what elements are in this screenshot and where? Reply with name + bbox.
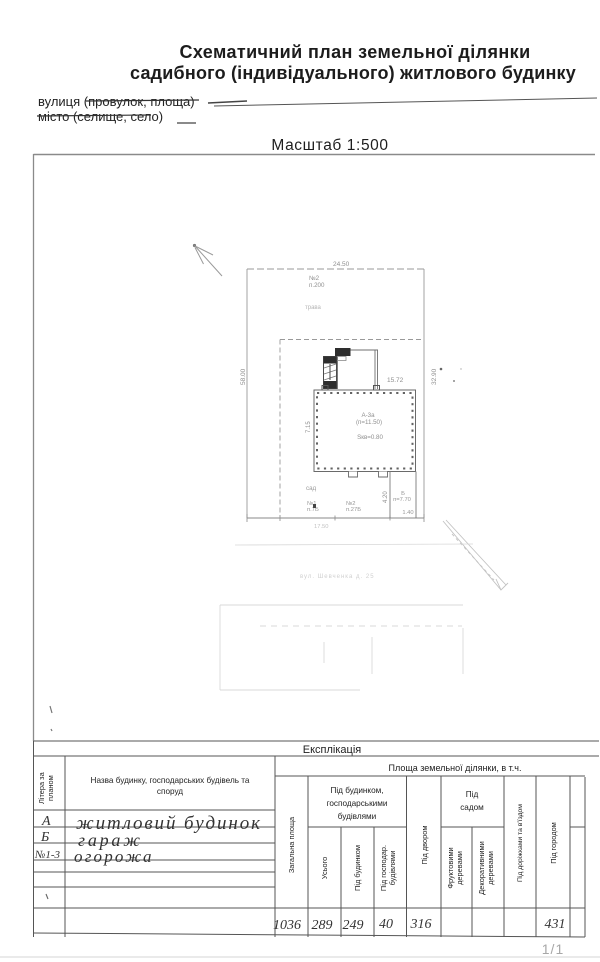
svg-text:господарськими: господарськими bbox=[327, 799, 388, 808]
svg-text:(п=11.50): (п=11.50) bbox=[356, 419, 382, 426]
svg-text:Декоративними: Декоративними bbox=[477, 841, 486, 894]
svg-text:Під будинком: Під будинком bbox=[353, 845, 362, 891]
svg-text:огорожа: огорожа bbox=[74, 847, 154, 866]
svg-text:Масштаб 1:500: Масштаб 1:500 bbox=[271, 137, 388, 154]
svg-text:58.00: 58.00 bbox=[240, 368, 247, 385]
svg-text:24.50: 24.50 bbox=[333, 261, 350, 268]
svg-text:Експлікація: Експлікація bbox=[303, 744, 362, 756]
svg-text:планом: планом bbox=[46, 775, 55, 801]
svg-text:А: А bbox=[41, 814, 51, 829]
svg-text:Літера за: Літера за bbox=[37, 771, 46, 804]
svg-text:№2: №2 bbox=[309, 275, 320, 282]
svg-text:вулиця (провулок, площа): вулиця (провулок, площа) bbox=[38, 94, 195, 109]
svg-text:садибного (індивідуального) жи: садибного (індивідуального) житлового бу… bbox=[130, 63, 576, 83]
svg-text:А-3а: А-3а bbox=[361, 412, 375, 419]
svg-text:7.15: 7.15 bbox=[306, 421, 312, 433]
svg-text:289: 289 bbox=[312, 918, 333, 933]
svg-text:316: 316 bbox=[410, 917, 432, 932]
svg-text:сад: сад bbox=[306, 485, 317, 492]
svg-text:садом: садом bbox=[460, 803, 484, 812]
svg-text:місто (селище, село): місто (селище, село) bbox=[38, 109, 163, 124]
svg-text:п.7Б: п.7Б bbox=[307, 507, 319, 513]
svg-text:споруд: споруд bbox=[157, 787, 183, 796]
svg-text:1.40: 1.40 bbox=[402, 510, 413, 516]
svg-text:Під городом: Під городом bbox=[549, 822, 558, 864]
svg-text:№1-3: №1-3 bbox=[34, 849, 61, 861]
svg-text:Sкв=0.80: Sкв=0.80 bbox=[357, 434, 383, 441]
svg-text:Усього: Усього bbox=[320, 857, 329, 880]
svg-text:вул. Шевченка д. 25: вул. Шевченка д. 25 bbox=[300, 574, 375, 580]
svg-text:431: 431 bbox=[545, 917, 566, 932]
svg-text:будівлями: будівлями bbox=[388, 851, 397, 886]
svg-text:1/1: 1/1 bbox=[542, 941, 564, 957]
svg-text:Під господар.: Під господар. bbox=[379, 845, 388, 891]
svg-text:Під доріжками та в'їздом: Під доріжками та в'їздом bbox=[516, 804, 524, 882]
svg-text:Фруктовими: Фруктовими bbox=[446, 847, 455, 888]
svg-text:трава: трава bbox=[305, 305, 322, 311]
svg-text:Загальна площа: Загальна площа bbox=[287, 816, 296, 873]
svg-text:п.27Б: п.27Б bbox=[346, 507, 361, 513]
svg-text:4.20: 4.20 bbox=[383, 491, 389, 503]
svg-text:15.72: 15.72 bbox=[387, 377, 404, 384]
svg-text:Під: Під bbox=[466, 790, 479, 799]
svg-text:32.90: 32.90 bbox=[431, 368, 438, 385]
svg-text:п.200: п.200 bbox=[309, 282, 325, 289]
svg-text:будівлями: будівлями bbox=[338, 812, 377, 821]
svg-text:1036: 1036 bbox=[273, 918, 301, 933]
svg-text:40: 40 bbox=[379, 917, 393, 932]
svg-text:Під двором: Під двором bbox=[420, 826, 429, 865]
svg-text:Схематичний план земельної діл: Схематичний план земельної ділянки bbox=[179, 42, 530, 62]
svg-text:249: 249 bbox=[343, 918, 364, 933]
svg-text:деревами: деревами bbox=[486, 851, 495, 885]
svg-text:Площа земельної ділянки, в т.ч: Площа земельної ділянки, в т.ч. bbox=[389, 763, 522, 773]
svg-text:Під будинком,: Під будинком, bbox=[330, 786, 383, 795]
svg-text:Б: Б bbox=[40, 830, 49, 845]
svg-text:17.50: 17.50 bbox=[314, 524, 329, 530]
svg-text:деревами: деревами bbox=[455, 851, 464, 885]
svg-text:п=7.70: п=7.70 bbox=[393, 497, 411, 503]
svg-text:Назва будинку, господарських б: Назва будинку, господарських будівель та bbox=[91, 776, 250, 785]
